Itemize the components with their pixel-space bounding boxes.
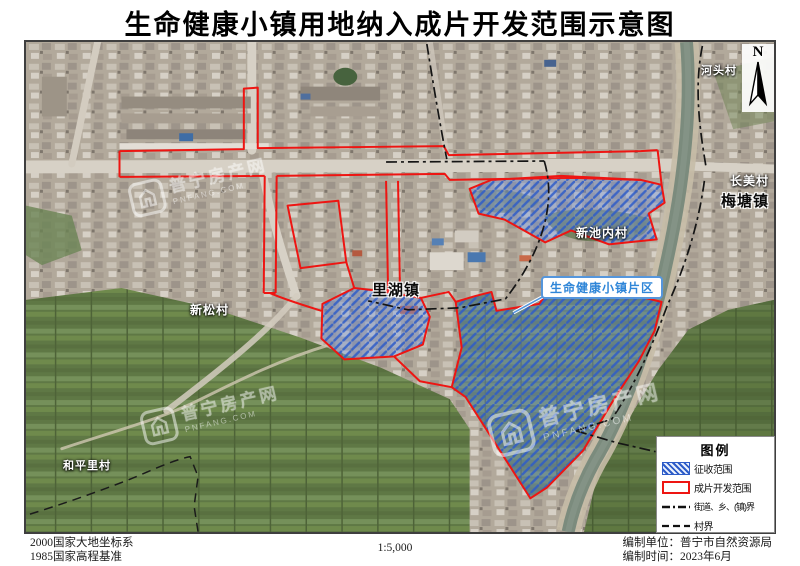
label-hepinglicun: 和平里村 (63, 457, 111, 473)
blue-hatch-swatch (662, 462, 690, 475)
credits: 编制单位：普宁市自然资源局 编制时间：2023年6月 (623, 537, 773, 564)
red-outline-swatch (662, 481, 690, 494)
datum-line1: 2000国家大地坐标系 (30, 537, 134, 551)
legend-item-label: 村界 (694, 518, 713, 533)
credit-line1: 编制单位：普宁市自然资源局 (623, 537, 773, 551)
callout-life-health-town: 生命健康小镇片区 (541, 276, 663, 299)
legend-item-development: 成片开发范围 (662, 478, 769, 497)
legend-title: 图例 (662, 440, 769, 459)
page: 生命健康小镇用地纳入成片开发范围示意图 (0, 0, 800, 566)
compass-icon (742, 60, 774, 110)
label-hetoucun: 河头村 (701, 62, 737, 78)
legend-item-label: 街道、乡、(镇)界 (694, 500, 754, 513)
legend-item-expropriation: 征收范围 (662, 459, 769, 478)
legend-item-township-boundary: 街道、乡、(镇)界 (662, 497, 769, 516)
legend: 图例 征收范围 成片开发范围 街道、乡、(镇)界 村界 (656, 436, 775, 533)
legend-item-label: 征收范围 (694, 461, 732, 476)
north-arrow: N (742, 44, 774, 112)
map-scale: 1:5,000 (320, 542, 470, 556)
credit-line2: 编制时间：2023年6月 (623, 551, 773, 565)
datum-note: 2000国家大地坐标系 1985国家高程基准 (30, 537, 134, 564)
label-xinchineicun: 新池内村 (576, 224, 628, 241)
dashed-line-swatch (662, 522, 690, 530)
dash-dot-line-swatch (662, 503, 690, 511)
legend-item-village-boundary: 村界 (662, 516, 769, 535)
label-meitangzhen: 梅塘镇 (721, 190, 769, 211)
label-xinsongcun: 新松村 (190, 301, 229, 318)
datum-line2: 1985国家高程基准 (30, 551, 134, 565)
north-label: N (742, 44, 774, 60)
label-lihuzhen: 里湖镇 (372, 279, 420, 300)
label-changmeicun: 长美村 (730, 172, 769, 189)
legend-item-label: 成片开发范围 (694, 480, 751, 495)
page-title: 生命健康小镇用地纳入成片开发范围示意图 (0, 3, 800, 42)
